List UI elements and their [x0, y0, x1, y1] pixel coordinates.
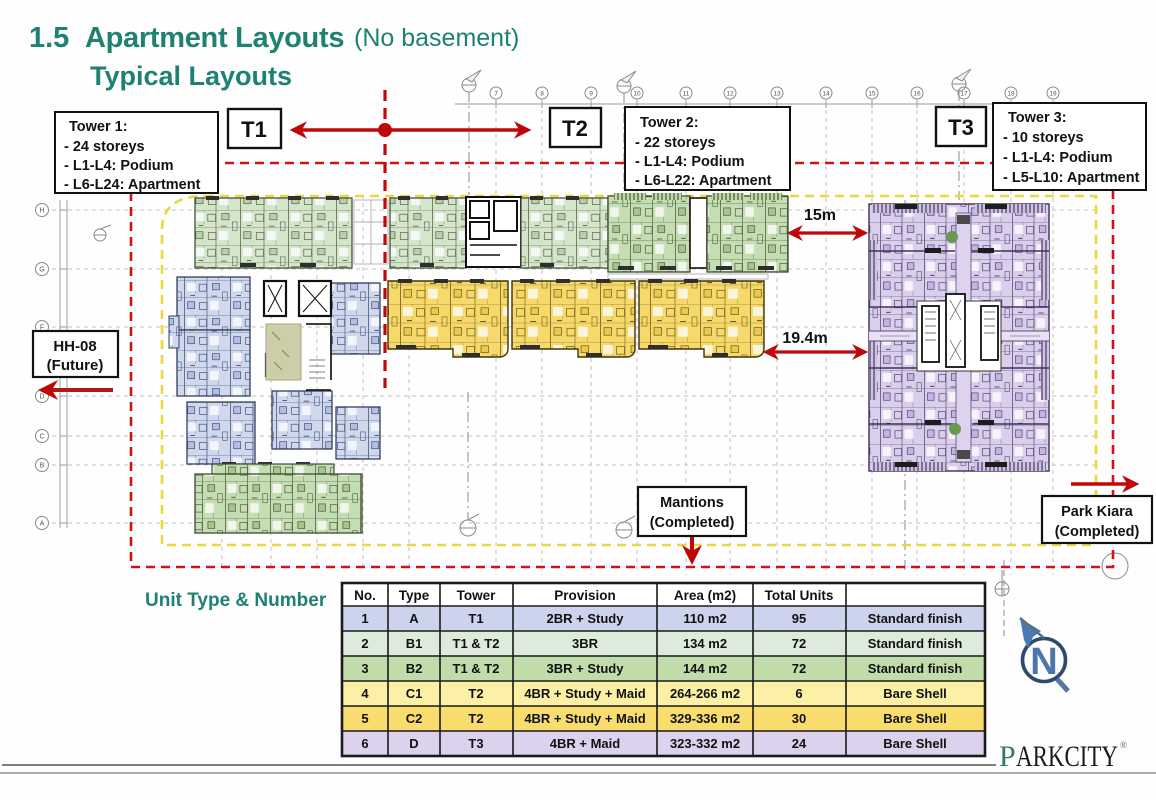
svg-text:N: N — [1030, 641, 1057, 683]
svg-text:14: 14 — [822, 91, 830, 98]
svg-text:4BR + Study + Maid: 4BR + Study + Maid — [524, 711, 645, 726]
svg-text:95: 95 — [792, 611, 806, 626]
svg-text:(Completed): (Completed) — [650, 515, 735, 531]
svg-text:T2: T2 — [562, 116, 588, 141]
svg-text:Apartment Layouts: Apartment Layouts — [85, 22, 344, 54]
svg-text:(Future): (Future) — [47, 357, 104, 374]
svg-text:- L6-L24: Apartment: - L6-L24: Apartment — [64, 177, 201, 193]
svg-text:Bare Shell: Bare Shell — [883, 711, 947, 726]
svg-text:T2: T2 — [468, 711, 483, 726]
svg-text:Area (m2): Area (m2) — [674, 588, 736, 603]
svg-text:2: 2 — [361, 636, 368, 651]
svg-text:T3: T3 — [468, 736, 483, 751]
svg-text:Park Kiara: Park Kiara — [1061, 504, 1134, 520]
svg-text:3BR: 3BR — [572, 636, 599, 651]
svg-text:T1 & T2: T1 & T2 — [453, 661, 500, 676]
svg-text:24: 24 — [792, 736, 807, 751]
svg-text:1.5: 1.5 — [29, 22, 69, 54]
svg-text:Total Units: Total Units — [765, 588, 834, 603]
svg-text:13: 13 — [773, 91, 781, 98]
svg-text:18: 18 — [1007, 91, 1015, 98]
svg-text:2BR + Study: 2BR + Study — [547, 611, 625, 626]
svg-text:30: 30 — [792, 711, 806, 726]
svg-text:D: D — [409, 736, 418, 751]
svg-text:T3: T3 — [948, 115, 974, 140]
svg-text:4BR + Maid: 4BR + Maid — [550, 736, 620, 751]
svg-text:110 m2: 110 m2 — [683, 611, 726, 626]
svg-text:- L5-L10: Apartment: - L5-L10: Apartment — [1003, 170, 1140, 186]
svg-text:Tower 1:: Tower 1: — [69, 119, 128, 135]
svg-text:Tower 2:: Tower 2: — [640, 115, 699, 131]
svg-text:12: 12 — [726, 91, 734, 98]
svg-text:T1: T1 — [241, 117, 267, 142]
svg-text:Tower: Tower — [457, 588, 496, 603]
svg-text:1: 1 — [361, 611, 368, 626]
svg-text:- 22 storeys: - 22 storeys — [635, 135, 716, 151]
svg-text:10: 10 — [633, 91, 641, 98]
svg-text:323-332 m2: 323-332 m2 — [670, 736, 740, 751]
svg-text:72: 72 — [792, 661, 806, 676]
svg-text:Tower 3:: Tower 3: — [1008, 110, 1067, 126]
svg-text:Type: Type — [399, 588, 430, 603]
svg-text:B1: B1 — [406, 636, 423, 651]
svg-text:Standard finish: Standard finish — [868, 636, 963, 651]
svg-text:HH-08: HH-08 — [53, 338, 96, 355]
svg-text:ARKCITY: ARKCITY — [1016, 740, 1118, 773]
svg-text:B: B — [40, 463, 45, 470]
svg-text:T2: T2 — [468, 686, 483, 701]
svg-text:- L1-L4: Podium: - L1-L4: Podium — [1003, 150, 1113, 166]
svg-text:B2: B2 — [406, 661, 423, 676]
svg-text:5: 5 — [361, 711, 368, 726]
svg-text:Unit Type & Number: Unit Type & Number — [145, 590, 327, 611]
svg-text:Bare Shell: Bare Shell — [883, 686, 947, 701]
svg-text:4BR + Study + Maid: 4BR + Study + Maid — [524, 686, 645, 701]
svg-text:Provision: Provision — [554, 588, 616, 603]
svg-text:T1: T1 — [468, 611, 483, 626]
svg-text:Standard finish: Standard finish — [868, 661, 963, 676]
svg-text:Bare Shell: Bare Shell — [883, 736, 947, 751]
svg-text:C1: C1 — [406, 686, 423, 701]
svg-text:19: 19 — [1049, 91, 1057, 98]
svg-text:15: 15 — [868, 91, 876, 98]
svg-text:Mantions: Mantions — [660, 495, 724, 511]
svg-text:C: C — [39, 434, 44, 441]
svg-text:T1 & T2: T1 & T2 — [453, 636, 500, 651]
svg-text:(No basement): (No basement) — [354, 24, 519, 52]
svg-text:- 10 storeys: - 10 storeys — [1003, 130, 1084, 146]
svg-text:264-266 m2: 264-266 m2 — [670, 686, 740, 701]
svg-text:19.4m: 19.4m — [782, 330, 827, 347]
svg-text:11: 11 — [683, 91, 690, 98]
svg-text:(Completed): (Completed) — [1055, 524, 1140, 540]
svg-text:Standard finish: Standard finish — [868, 611, 963, 626]
svg-text:®: ® — [1120, 740, 1127, 750]
svg-text:6: 6 — [361, 736, 368, 751]
svg-text:D: D — [39, 394, 44, 401]
svg-text:3BR + Study: 3BR + Study — [547, 661, 625, 676]
svg-text:144 m2: 144 m2 — [683, 661, 727, 676]
svg-text:3: 3 — [361, 661, 368, 676]
svg-text:H: H — [39, 208, 44, 215]
svg-text:- L1-L4: Podium: - L1-L4: Podium — [635, 154, 745, 170]
svg-text:15m: 15m — [804, 207, 836, 224]
svg-text:A: A — [409, 611, 419, 626]
svg-text:6: 6 — [795, 686, 802, 701]
svg-text:- L1-L4: Podium: - L1-L4: Podium — [64, 158, 174, 174]
svg-text:134 m2: 134 m2 — [683, 636, 727, 651]
svg-text:16: 16 — [913, 91, 921, 98]
svg-text:No.: No. — [354, 588, 376, 603]
svg-text:G: G — [39, 267, 44, 274]
svg-text:- 24 storeys: - 24 storeys — [64, 139, 145, 155]
svg-text:9: 9 — [589, 91, 593, 98]
svg-text:- L6-L22: Apartment: - L6-L22: Apartment — [635, 173, 772, 189]
svg-text:72: 72 — [792, 636, 806, 651]
svg-text:7: 7 — [494, 91, 498, 98]
svg-text:Typical Layouts: Typical Layouts — [90, 61, 292, 91]
svg-text:A: A — [40, 521, 45, 528]
svg-text:329-336 m2: 329-336 m2 — [670, 711, 740, 726]
svg-text:17: 17 — [960, 91, 968, 98]
svg-text:4: 4 — [361, 686, 369, 701]
svg-text:8: 8 — [540, 91, 544, 98]
svg-text:P: P — [999, 740, 1016, 773]
svg-text:C2: C2 — [406, 711, 423, 726]
